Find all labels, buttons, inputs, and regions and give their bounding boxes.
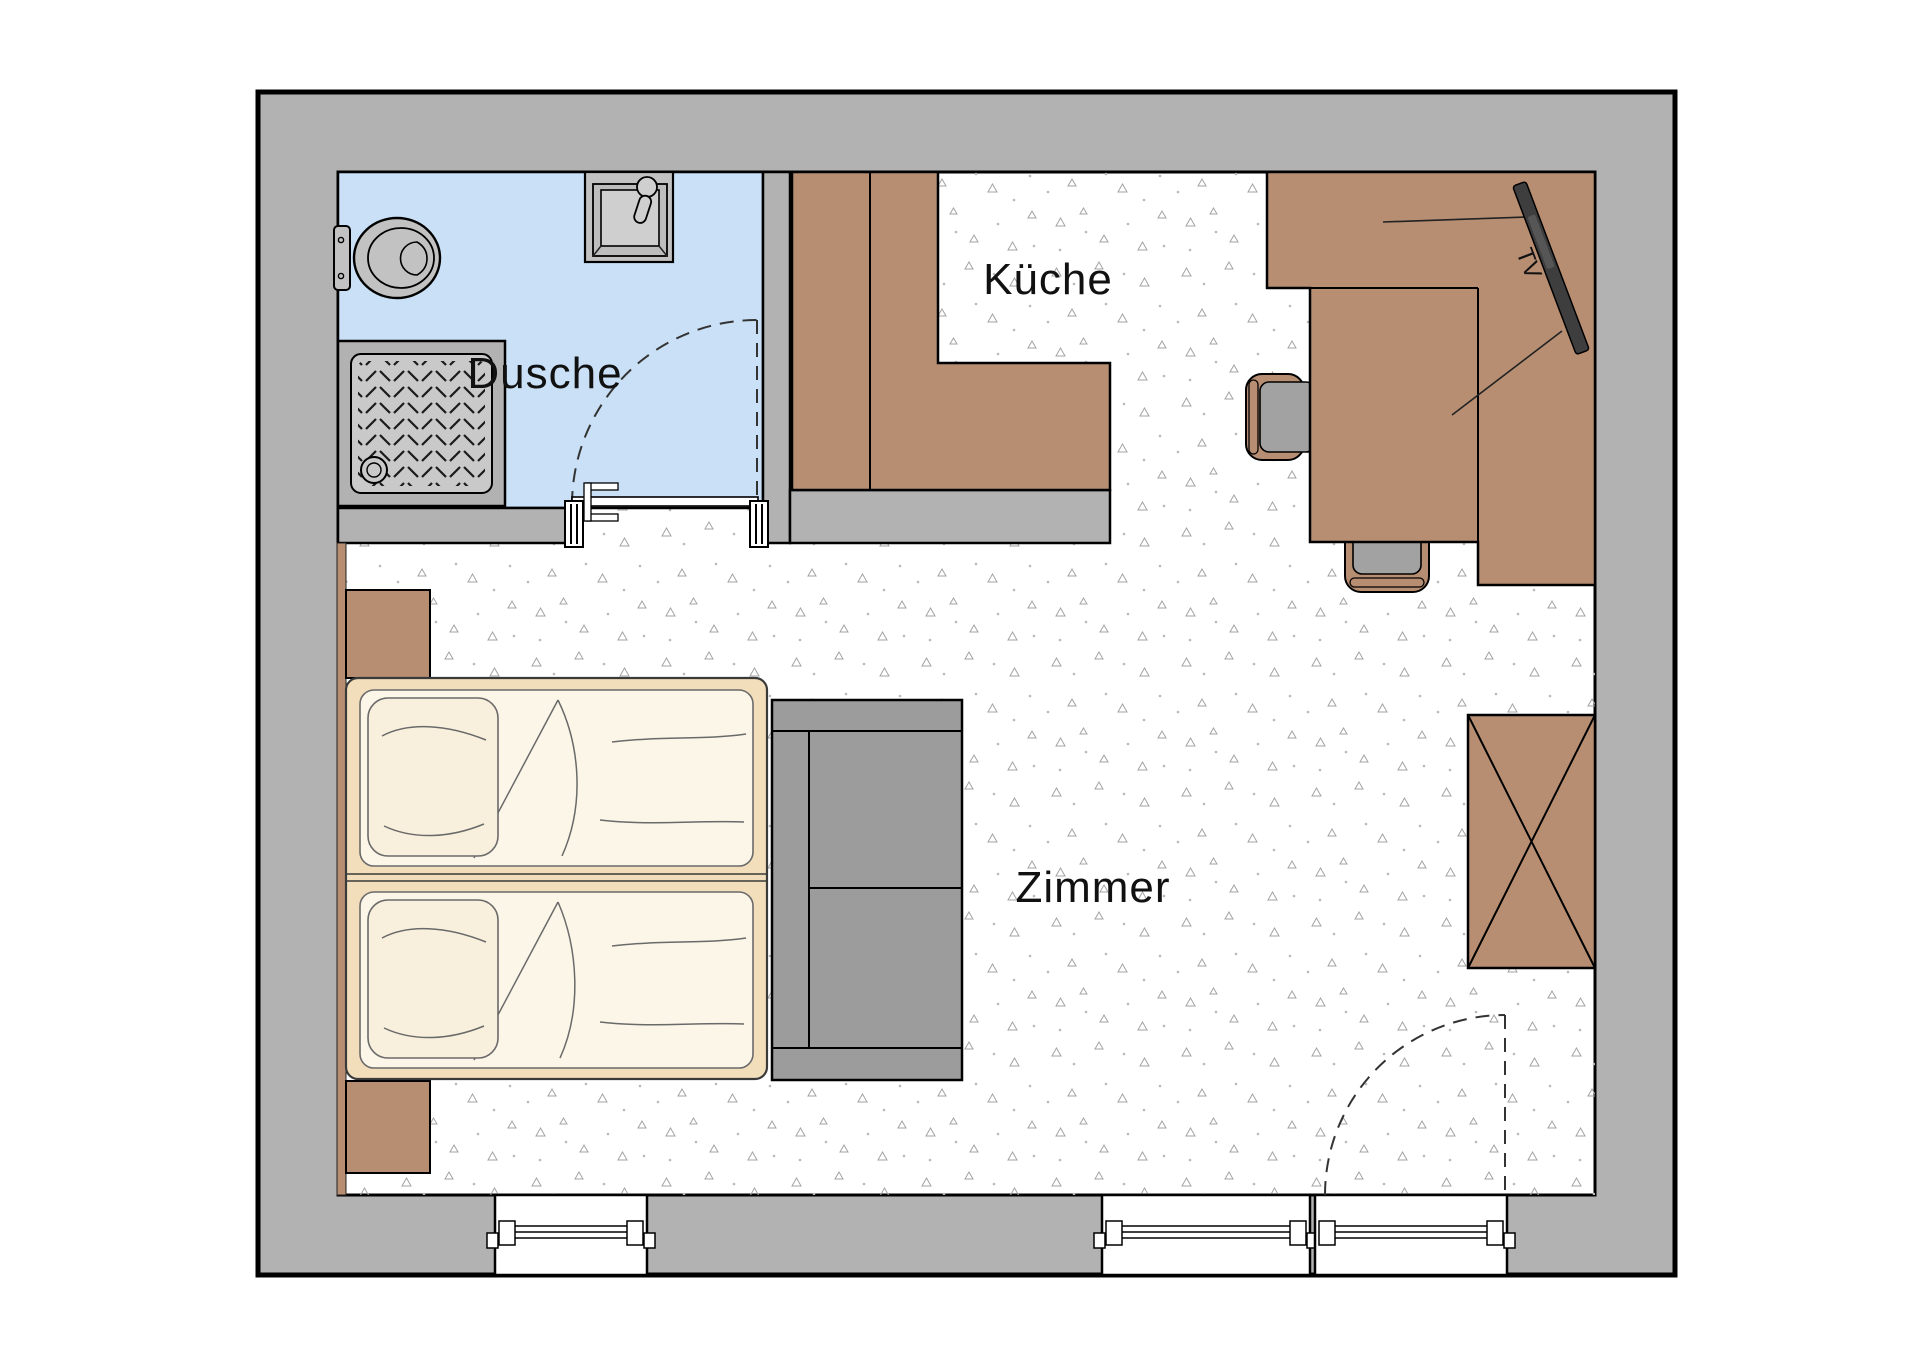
bathroom-kitchen-wall	[763, 172, 790, 543]
mattress-1	[360, 690, 753, 866]
wardrobe	[1468, 715, 1595, 968]
pillow-1	[368, 698, 498, 856]
kitchen-half-wall	[790, 490, 1110, 543]
floor-plan-page: TV	[0, 0, 1920, 1357]
double-bed	[346, 678, 767, 1079]
pillow-2	[368, 900, 498, 1058]
shower-drain	[361, 457, 387, 483]
floor-plan-drawing: TV	[0, 0, 1920, 1357]
window-1	[487, 1195, 655, 1275]
toilet	[334, 218, 440, 298]
wall-panel-strip	[337, 543, 346, 1195]
sofa	[772, 700, 962, 1080]
bathroom-label: Dusche	[467, 349, 622, 398]
office-chair-1	[1246, 374, 1315, 460]
door-leaf	[572, 497, 758, 506]
window-2	[1094, 1195, 1318, 1275]
bathroom-south-wall	[338, 508, 567, 543]
kitchen-label: Küche	[983, 255, 1113, 304]
nightstand-2	[346, 1081, 430, 1173]
nightstand-1	[346, 590, 430, 678]
washbasin	[585, 172, 673, 262]
room-label: Zimmer	[1015, 863, 1170, 912]
mattress-2	[360, 892, 753, 1068]
